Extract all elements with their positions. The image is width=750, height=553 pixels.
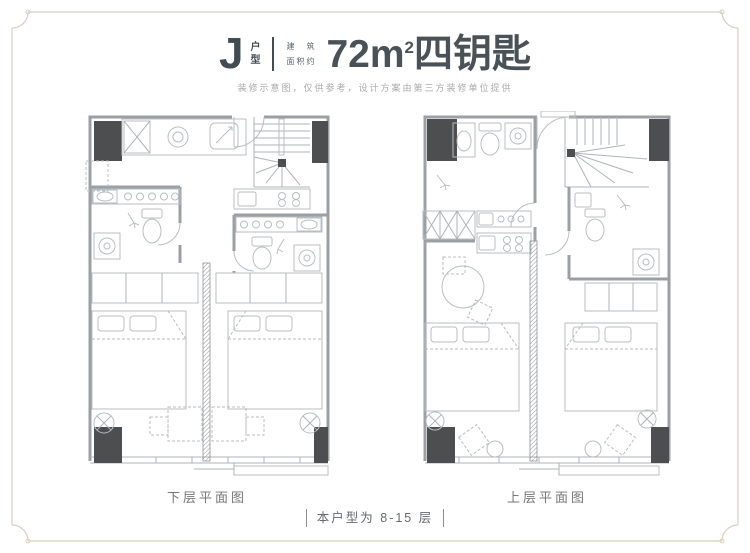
outer-walls xyxy=(425,111,669,463)
unit-type-label: 户 型 xyxy=(250,41,260,67)
lower-floor-plan xyxy=(84,111,330,480)
lower-plan-label: 下层平面图 xyxy=(84,487,330,506)
closet-x-left xyxy=(423,211,475,239)
wardrobe-right xyxy=(216,273,322,303)
disclaimer-text: 装修示意图，仅供参考，设计方案由第三方装修单位提供 xyxy=(0,81,750,94)
floorplan-page: { "header": { "unit_letter": "J", "unit_… xyxy=(0,0,750,553)
balcony xyxy=(519,463,659,475)
cabinet-circles xyxy=(477,211,531,227)
staircase xyxy=(565,117,649,187)
dining-table xyxy=(442,257,493,325)
kitchenette-right xyxy=(234,189,310,209)
area-title: 72m2四钥匙 xyxy=(326,35,531,74)
bathroom-left xyxy=(90,187,180,263)
wardrobe-right xyxy=(585,283,657,311)
title-block: J 户 型 建筑 面积约 72m2四钥匙 xyxy=(0,32,750,76)
unit-letter: J xyxy=(219,32,243,76)
balcony xyxy=(194,463,328,475)
bed-right xyxy=(228,311,322,409)
bathroom-upper-right xyxy=(545,187,669,279)
party-wall xyxy=(203,263,210,461)
bed-left xyxy=(425,323,519,411)
upper-floor-plan xyxy=(419,111,675,480)
bed-right xyxy=(565,323,657,411)
square-exponent: 2 xyxy=(405,38,414,57)
chair-right xyxy=(585,425,635,457)
chair-left xyxy=(459,425,503,457)
structural-columns xyxy=(94,121,328,463)
upper-plan-label: 上层平面图 xyxy=(419,487,675,506)
side-table-right xyxy=(638,410,656,428)
bathroom-right xyxy=(234,215,328,273)
kitchen xyxy=(122,119,246,155)
kitchenette-left xyxy=(477,233,531,253)
side-table-right xyxy=(300,413,320,433)
title-divider xyxy=(272,37,274,71)
wardrobe-left xyxy=(92,273,198,303)
entry-door-arc xyxy=(537,117,569,149)
bed-left xyxy=(92,311,186,409)
area-prefix-label: 建筑 面积约 xyxy=(286,41,316,67)
floor-note: 本户型为 8-15 层 xyxy=(0,507,750,526)
party-wall xyxy=(530,241,537,461)
